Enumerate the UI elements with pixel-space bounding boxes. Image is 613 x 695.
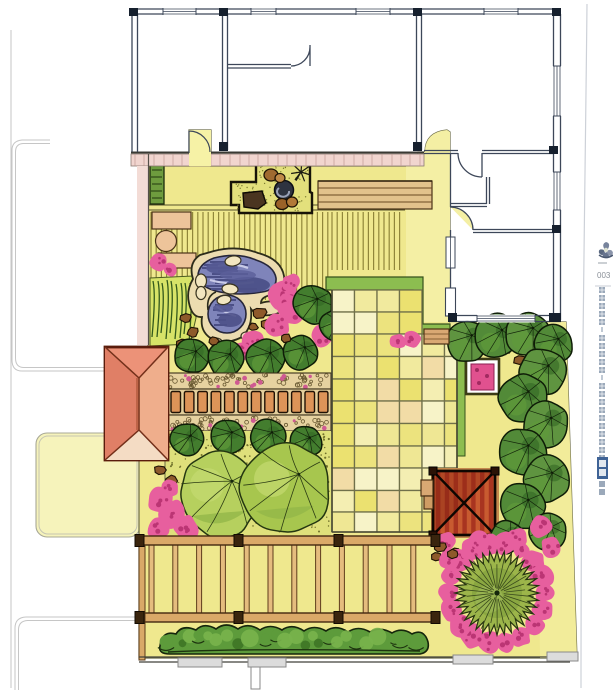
svg-text:003: 003 bbox=[597, 271, 611, 280]
